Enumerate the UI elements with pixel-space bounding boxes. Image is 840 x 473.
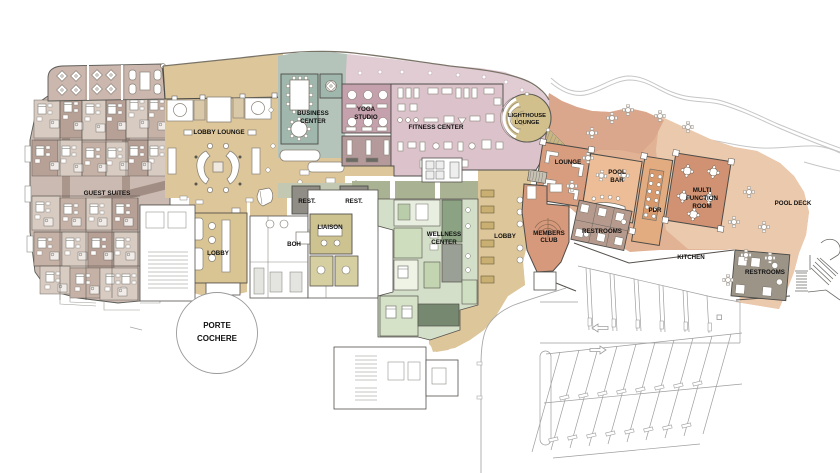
svg-text:LOUNGE: LOUNGE xyxy=(515,120,540,126)
svg-text:LOBBY: LOBBY xyxy=(207,250,230,257)
svg-text:KITCHEN: KITCHEN xyxy=(677,254,705,261)
svg-text:CENTER: CENTER xyxy=(431,239,457,246)
svg-text:POOL DECK: POOL DECK xyxy=(775,200,812,207)
svg-text:LOBBY: LOBBY xyxy=(494,233,517,240)
svg-text:RESTROOMS: RESTROOMS xyxy=(582,228,622,235)
svg-text:PDR: PDR xyxy=(648,207,662,214)
svg-text:YOGA: YOGA xyxy=(357,106,376,113)
svg-text:LIGHTHOUSE: LIGHTHOUSE xyxy=(508,113,546,119)
svg-text:WELLNESS: WELLNESS xyxy=(427,231,461,238)
svg-text:CLUB: CLUB xyxy=(540,237,558,244)
svg-text:LOUNGE: LOUNGE xyxy=(555,159,581,166)
svg-text:PORTE: PORTE xyxy=(203,321,231,330)
svg-text:LOBBY LOUNGE: LOBBY LOUNGE xyxy=(193,129,245,136)
svg-text:REST.: REST. xyxy=(345,198,363,205)
svg-text:LIAISON: LIAISON xyxy=(317,224,343,231)
svg-text:REST.: REST. xyxy=(298,198,316,205)
svg-text:CENTER: CENTER xyxy=(300,118,326,125)
svg-text:RESTROOMS: RESTROOMS xyxy=(745,269,785,276)
svg-text:FUNCTION: FUNCTION xyxy=(686,195,718,202)
svg-text:COCHERE: COCHERE xyxy=(197,334,238,343)
svg-text:BAR: BAR xyxy=(610,177,624,184)
svg-text:POOL: POOL xyxy=(608,169,626,176)
svg-text:BUSINESS: BUSINESS xyxy=(297,110,329,117)
svg-text:FITNESS CENTER: FITNESS CENTER xyxy=(408,124,463,131)
svg-text:MULTI: MULTI xyxy=(693,187,712,194)
svg-text:GUEST SUITES: GUEST SUITES xyxy=(84,190,132,197)
svg-text:MEMBERS: MEMBERS xyxy=(533,230,565,237)
svg-text:BOH: BOH xyxy=(287,241,301,248)
svg-text:ROOM: ROOM xyxy=(692,203,711,210)
svg-text:STUDIO: STUDIO xyxy=(354,114,378,121)
